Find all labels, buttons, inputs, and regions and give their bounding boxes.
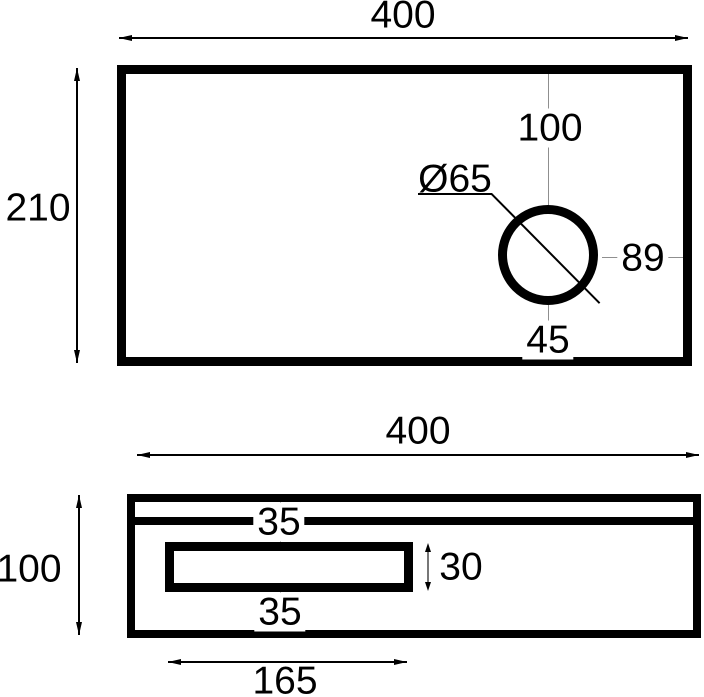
dim-arrow-down-icon	[76, 622, 82, 635]
section-width-label: 400	[385, 412, 450, 451]
hole-offset-top-label: 100	[513, 109, 586, 148]
dim-arrow-down-icon	[425, 582, 431, 591]
slot-height-label: 30	[439, 548, 482, 587]
dim-arrow-left-icon	[168, 659, 181, 665]
hole-offset-right-label: 89	[617, 239, 668, 278]
hole-circle	[498, 205, 598, 305]
section-inner-surface-line	[135, 517, 693, 525]
slot-outline	[165, 542, 413, 592]
dim-arrow-right-icon	[394, 659, 407, 665]
plan-height-dimline	[76, 68, 78, 363]
diameter-underline	[418, 193, 492, 195]
dim-arrow-down-icon	[74, 350, 80, 363]
dim-arrow-right-icon	[675, 35, 688, 41]
slot-width-label: 165	[252, 662, 317, 697]
section-height-label: 100	[0, 550, 62, 589]
inset-bottom-label: 35	[254, 593, 305, 632]
dim-arrow-left-icon	[119, 35, 132, 41]
inset-top-label: 35	[253, 503, 304, 542]
plan-outline	[117, 65, 692, 366]
dim-arrow-up-icon	[74, 68, 80, 81]
hole-offset-bottom-label: 45	[522, 321, 573, 360]
dim-arrow-left-icon	[137, 452, 150, 458]
plan-width-label: 400	[370, 0, 435, 35]
section-height-dimline	[78, 495, 80, 635]
dim-arrow-up-icon	[425, 543, 431, 552]
dim-arrow-up-icon	[76, 495, 82, 508]
dim-arrow-right-icon	[686, 452, 699, 458]
plan-height-label: 210	[5, 189, 70, 228]
section-width-dimline	[137, 454, 699, 456]
drawing-canvas: 400 210 100 Ø65 89 45 400 10	[0, 0, 704, 697]
plan-width-dimline	[119, 37, 688, 39]
